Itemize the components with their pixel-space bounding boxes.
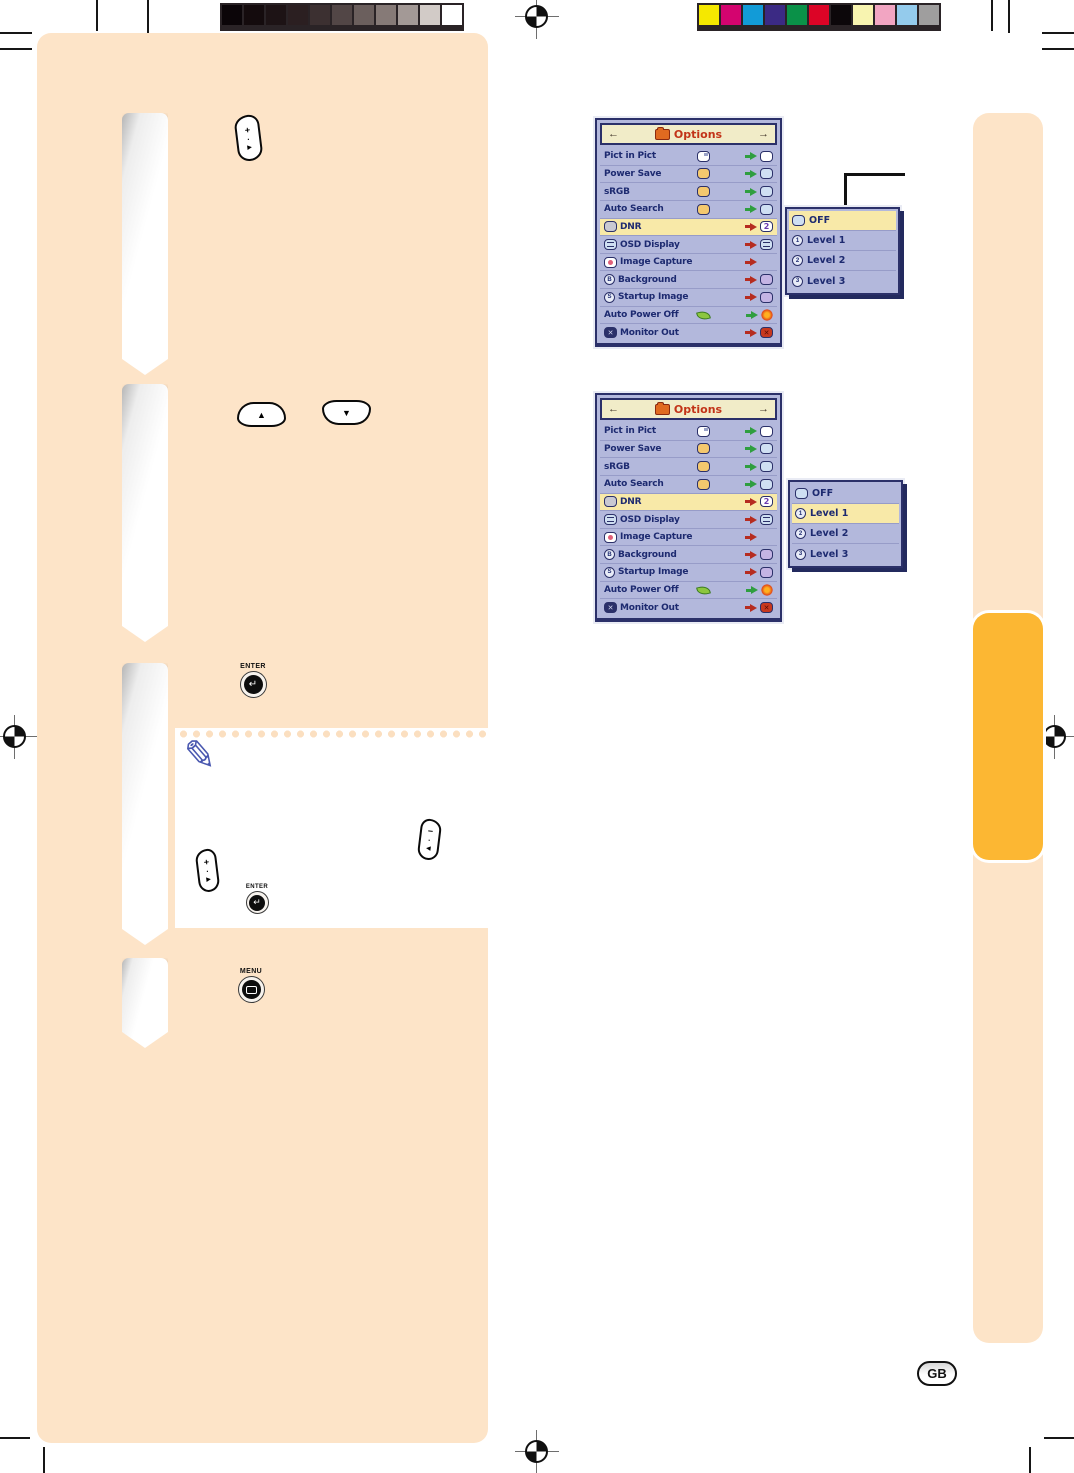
menu-title: Options xyxy=(674,403,722,416)
menu-title: Options xyxy=(674,128,722,141)
plus-glyph: + xyxy=(244,125,250,135)
red-arrow-icon xyxy=(745,240,757,249)
menu-item-srgb[interactable]: sRGB xyxy=(600,183,777,201)
menu-item-label: Power Save xyxy=(604,169,661,179)
osd-options-menu-1: ← Options → Pict in Pict Power Save sRGB xyxy=(595,118,782,347)
menu-right-arrow[interactable]: → xyxy=(758,404,769,415)
red-arrow-icon xyxy=(745,568,757,577)
level-1-icon: 1 xyxy=(795,508,806,519)
color-swatch xyxy=(743,5,763,25)
value-icon xyxy=(760,426,773,437)
power-save-icon xyxy=(697,168,710,179)
dnr-option-level-3[interactable]: 3 Level 3 xyxy=(792,544,899,564)
option-label: Level 1 xyxy=(810,508,848,519)
value-icon xyxy=(760,479,773,490)
menu-item-label: DNR xyxy=(620,222,641,232)
dnr-icon xyxy=(604,221,617,232)
level-2-icon: 2 xyxy=(792,255,803,266)
menu-item-label: Pict in Pict xyxy=(604,426,656,436)
value-icon xyxy=(760,186,773,197)
menu-left-arrow[interactable]: ← xyxy=(608,129,619,140)
background-icon: B xyxy=(604,274,615,285)
gray-swatch xyxy=(310,5,330,25)
dnr-option-level-3[interactable]: 3 Level 3 xyxy=(789,271,896,291)
crop-mark xyxy=(1044,1437,1074,1439)
menu-item-label: Image Capture xyxy=(620,257,692,267)
registration-crosshair xyxy=(0,715,37,759)
value-icon xyxy=(760,514,773,525)
options-folder-icon xyxy=(655,404,670,415)
language-badge: GB xyxy=(917,1361,957,1386)
color-swatch xyxy=(721,5,741,25)
dot-glyph: · xyxy=(427,837,431,845)
red-arrow-icon xyxy=(745,603,757,612)
menu-item-monitor-out[interactable]: ✕ Monitor Out ✕ xyxy=(600,599,777,616)
menu-left-arrow[interactable]: ← xyxy=(608,404,619,415)
dnr-submenu-2: OFF 1 Level 1 2 Level 2 3 Level 3 xyxy=(788,480,903,568)
color-swatch xyxy=(875,5,895,25)
menu-item-pict-in-pict[interactable]: Pict in Pict xyxy=(600,148,777,166)
adjust-up-button[interactable]: ▲ xyxy=(237,402,286,427)
menu-item-label: Monitor Out xyxy=(620,603,679,613)
option-label: OFF xyxy=(812,488,833,499)
option-label: Level 3 xyxy=(807,276,845,287)
plus-glyph: + xyxy=(203,858,209,868)
menu-item-background[interactable]: B Background xyxy=(600,271,777,289)
red-arrow-icon xyxy=(745,533,757,542)
section-tab[interactable] xyxy=(973,613,1043,860)
menu-item-label: Auto Power Off xyxy=(604,310,678,320)
crop-mark xyxy=(991,0,993,31)
dnr-submenu-1: OFF 1 Level 1 2 Level 2 3 Level 3 xyxy=(785,207,900,295)
note-pencil-icon: ✎ xyxy=(181,732,218,780)
step-banner-4 xyxy=(122,958,168,1048)
step-banner-3 xyxy=(122,663,168,945)
enter-button-label: ENTER xyxy=(235,884,279,890)
registration-crosshair xyxy=(515,1430,559,1473)
value-icon xyxy=(760,567,773,578)
menu-item-srgb[interactable]: sRGB xyxy=(600,458,777,476)
menu-item-background[interactable]: B Background xyxy=(600,546,777,564)
menu-item-label: Monitor Out xyxy=(620,328,679,338)
registration-crosshair xyxy=(515,0,559,39)
option-label: OFF xyxy=(809,215,830,226)
value-icon xyxy=(760,151,773,162)
menu-item-power-save[interactable]: Power Save xyxy=(600,441,777,459)
adjust-down-button[interactable]: ▼ xyxy=(322,400,371,425)
menu-item-label: Auto Power Off xyxy=(604,585,678,595)
menu-item-monitor-out[interactable]: ✕ Monitor Out ✕ xyxy=(600,324,777,341)
gray-swatch xyxy=(420,5,440,25)
enter-icon: ↵ xyxy=(249,895,265,911)
menu-button[interactable]: MENU xyxy=(229,968,273,1003)
option-label: Level 1 xyxy=(807,235,845,246)
menu-item-label: Power Save xyxy=(604,444,661,454)
menu-item-dnr[interactable]: DNR 2 xyxy=(600,494,777,512)
menu-item-label: Background xyxy=(618,550,677,560)
level-3-icon: 3 xyxy=(792,276,803,287)
value-icon xyxy=(760,292,773,303)
menu-item-startup-image[interactable]: S Startup Image xyxy=(600,564,777,582)
gray-swatch xyxy=(266,5,286,25)
menu-item-osd-display[interactable]: OSD Display xyxy=(600,236,777,254)
down-arrow-glyph: ▼ xyxy=(342,408,351,418)
power-save-icon xyxy=(697,443,710,454)
red-arrow-icon xyxy=(745,328,757,337)
green-arrow-icon xyxy=(745,427,757,436)
menu-item-label: Image Capture xyxy=(620,532,692,542)
value-icon: ✕ xyxy=(760,327,773,338)
menu-button-label: MENU xyxy=(229,968,273,975)
menu-header: ← Options → xyxy=(600,398,777,420)
gray-swatch xyxy=(244,5,264,25)
green-arrow-icon xyxy=(745,480,757,489)
color-swatch xyxy=(765,5,785,25)
gray-swatch xyxy=(354,5,374,25)
dnr-option-level-2[interactable]: 2 Level 2 xyxy=(792,524,899,544)
leaf-icon xyxy=(696,584,711,596)
green-arrow-icon xyxy=(745,187,757,196)
dot-glyph: · xyxy=(206,868,210,876)
menu-item-label: Auto Search xyxy=(604,204,664,214)
manual-page: ✎ + · ▶ ▲ ▼ ENTER ↵ − · ◀ + · ▶ ENTER ↵ … xyxy=(0,0,1074,1473)
osd-display-icon xyxy=(604,239,617,250)
red-arrow-icon xyxy=(745,515,757,524)
dnr-option-off[interactable]: OFF xyxy=(792,484,899,504)
leaf-icon xyxy=(696,309,711,321)
value-icon xyxy=(760,461,773,472)
grayscale-calibration-bar xyxy=(220,3,464,31)
red-arrow-icon xyxy=(745,293,757,302)
menu-item-auto-search[interactable]: Auto Search xyxy=(600,201,777,219)
crop-mark xyxy=(1029,1447,1031,1473)
crop-mark xyxy=(43,1447,45,1473)
srgb-icon xyxy=(697,461,710,472)
step-banner-2 xyxy=(122,384,168,642)
gray-swatch xyxy=(398,5,418,25)
option-label: Level 2 xyxy=(807,255,845,266)
gray-swatch xyxy=(442,5,462,25)
green-arrow-icon xyxy=(746,586,758,595)
srgb-icon xyxy=(697,186,710,197)
level-2-icon: 2 xyxy=(795,528,806,539)
menu-item-label: OSD Display xyxy=(620,515,680,525)
menu-item-auto-search[interactable]: Auto Search xyxy=(600,476,777,494)
color-swatch xyxy=(919,5,939,25)
menu-item-label: Auto Search xyxy=(604,479,664,489)
menu-item-label: sRGB xyxy=(604,462,630,472)
crop-mark xyxy=(96,0,98,31)
menu-item-power-save[interactable]: Power Save xyxy=(600,166,777,184)
pict-in-pict-icon xyxy=(697,426,710,437)
crop-mark xyxy=(0,1437,30,1439)
value-icon xyxy=(760,239,773,250)
menu-item-label: Background xyxy=(618,275,677,285)
crop-mark xyxy=(1008,0,1010,33)
callout-line xyxy=(844,173,847,207)
up-arrow-glyph: ▲ xyxy=(257,410,266,420)
value-icon xyxy=(760,168,773,179)
monitor-out-icon: ✕ xyxy=(604,327,617,338)
color-calibration-bar xyxy=(697,3,941,31)
crop-mark xyxy=(0,48,32,50)
menu-item-image-capture[interactable]: Image Capture xyxy=(600,254,777,272)
menu-item-auto-power-off[interactable]: Auto Power Off xyxy=(600,582,777,600)
value-icon xyxy=(760,274,773,285)
background-icon: B xyxy=(604,549,615,560)
menu-item-auto-power-off[interactable]: Auto Power Off xyxy=(600,307,777,325)
crop-mark xyxy=(1042,48,1074,50)
dnr-option-level-1[interactable]: 1 Level 1 xyxy=(792,504,899,524)
menu-right-arrow[interactable]: → xyxy=(758,129,769,140)
menu-item-image-capture[interactable]: Image Capture xyxy=(600,529,777,547)
dnr-option-level-1[interactable]: 1 Level 1 xyxy=(789,231,896,251)
red-arrow-icon xyxy=(745,497,757,506)
value-icon xyxy=(760,549,773,560)
menu-item-osd-display[interactable]: OSD Display xyxy=(600,511,777,529)
off-icon xyxy=(792,215,805,226)
gray-swatch xyxy=(222,5,242,25)
left-arrow-glyph: ◀ xyxy=(426,846,431,853)
green-arrow-icon xyxy=(745,462,757,471)
value-icon xyxy=(760,443,773,454)
option-label: Level 2 xyxy=(810,528,848,539)
enter-icon: ↵ xyxy=(244,675,263,694)
dnr-option-off[interactable]: OFF xyxy=(789,211,896,231)
menu-header: ← Options → xyxy=(600,123,777,145)
green-arrow-icon xyxy=(745,169,757,178)
enter-button[interactable]: ENTER ↵ xyxy=(231,663,275,698)
dnr-icon xyxy=(604,496,617,507)
enter-button[interactable]: ENTER ↵ xyxy=(235,884,279,914)
osd-display-icon xyxy=(604,514,617,525)
menu-item-label: DNR xyxy=(620,497,641,507)
green-arrow-icon xyxy=(745,444,757,453)
green-arrow-icon xyxy=(746,311,758,320)
step-banner-1 xyxy=(122,113,168,375)
enter-button-label: ENTER xyxy=(231,663,275,670)
menu-item-pict-in-pict[interactable]: Pict in Pict xyxy=(600,423,777,441)
value-icon: ✕ xyxy=(760,602,773,613)
menu-item-label: Startup Image xyxy=(618,567,688,577)
color-swatch xyxy=(787,5,807,25)
menu-item-label: OSD Display xyxy=(620,240,680,250)
value-icon xyxy=(760,204,773,215)
off-icon xyxy=(795,488,808,499)
power-burst-icon xyxy=(761,309,773,321)
startup-image-icon: S xyxy=(604,292,615,303)
dot-glyph: · xyxy=(247,135,251,143)
image-capture-icon xyxy=(604,257,617,268)
note-dotted-border xyxy=(177,729,488,739)
options-folder-icon xyxy=(655,129,670,140)
color-swatch xyxy=(853,5,873,25)
menu-icon xyxy=(246,986,257,994)
color-swatch xyxy=(809,5,829,25)
red-arrow-icon xyxy=(745,275,757,284)
menu-item-startup-image[interactable]: S Startup Image xyxy=(600,289,777,307)
dnr-value-icon: 2 xyxy=(760,221,773,232)
red-arrow-icon xyxy=(745,222,757,231)
dnr-value-icon: 2 xyxy=(760,496,773,507)
green-arrow-icon xyxy=(745,152,757,161)
menu-item-dnr[interactable]: DNR 2 xyxy=(600,219,777,237)
gray-swatch xyxy=(332,5,352,25)
level-1-icon: 1 xyxy=(792,235,803,246)
right-arrow-glyph: ▶ xyxy=(247,144,252,151)
pict-in-pict-icon xyxy=(697,151,710,162)
red-arrow-icon xyxy=(745,258,757,267)
startup-image-icon: S xyxy=(604,567,615,578)
menu-item-label: sRGB xyxy=(604,187,630,197)
auto-search-icon xyxy=(697,479,710,490)
auto-search-icon xyxy=(697,204,710,215)
dnr-option-level-2[interactable]: 2 Level 2 xyxy=(789,251,896,271)
osd-options-menu-2: ← Options → Pict in Pict Power Save sRGB xyxy=(595,393,782,622)
option-label: Level 3 xyxy=(810,549,848,560)
menu-item-label: Pict in Pict xyxy=(604,151,656,161)
crop-mark xyxy=(0,32,32,34)
right-arrow-glyph: ▶ xyxy=(206,877,211,884)
green-arrow-icon xyxy=(745,205,757,214)
callout-line xyxy=(844,173,905,176)
image-capture-icon xyxy=(604,532,617,543)
monitor-out-icon: ✕ xyxy=(604,602,617,613)
red-arrow-icon xyxy=(745,550,757,559)
gray-swatch xyxy=(376,5,396,25)
crop-mark xyxy=(147,0,149,33)
crop-mark xyxy=(1042,32,1074,34)
color-swatch xyxy=(831,5,851,25)
level-3-icon: 3 xyxy=(795,549,806,560)
color-swatch xyxy=(699,5,719,25)
color-swatch xyxy=(897,5,917,25)
menu-item-label: Startup Image xyxy=(618,292,688,302)
power-burst-icon xyxy=(761,584,773,596)
gray-swatch xyxy=(288,5,308,25)
